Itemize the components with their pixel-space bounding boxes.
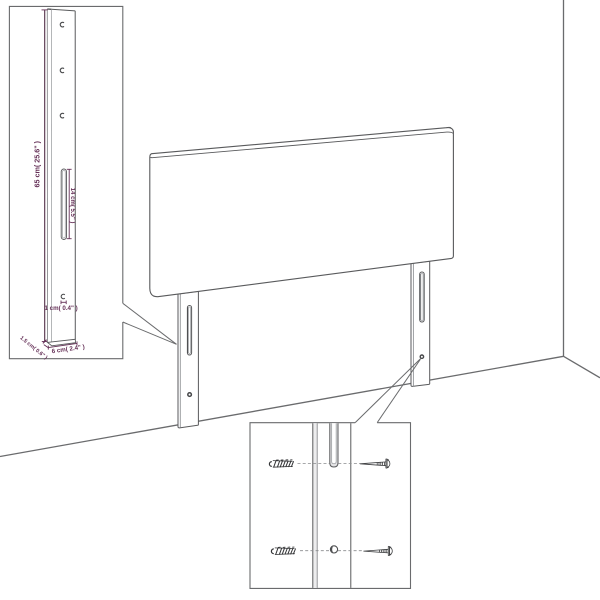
svg-text:65 cm( 25.6" ): 65 cm( 25.6" ) [33,140,42,187]
svg-text:14 cm( 5.5" ): 14 cm( 5.5" ) [69,188,75,224]
svg-text:1 cm( 0.4" ): 1 cm( 0.4" ) [45,305,78,312]
